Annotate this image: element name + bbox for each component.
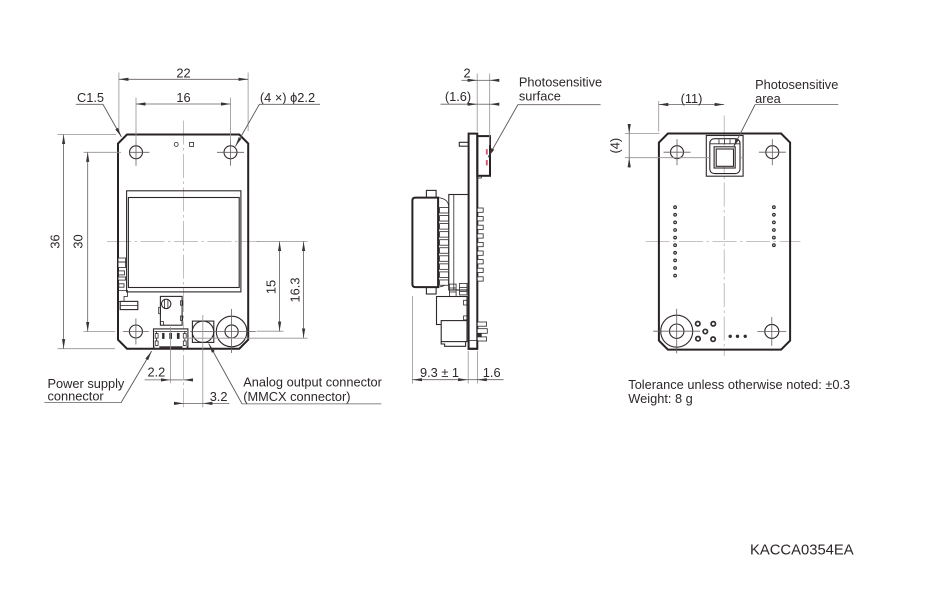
svg-text:2: 2 (463, 65, 470, 80)
svg-text:2.2: 2.2 (148, 365, 166, 380)
svg-text:16: 16 (176, 90, 190, 105)
svg-text:36: 36 (47, 234, 62, 248)
svg-text:Photosensitive: Photosensitive (755, 77, 838, 92)
svg-text:22: 22 (176, 65, 190, 80)
svg-text:Analog output connector: Analog output connector (243, 375, 382, 390)
svg-text:30: 30 (71, 234, 86, 248)
svg-text:1.6: 1.6 (483, 365, 501, 380)
svg-text:surface: surface (519, 89, 561, 104)
svg-text:(4 ×) ϕ2.2: (4 ×) ϕ2.2 (260, 90, 315, 105)
svg-text:KACCA0354EA: KACCA0354EA (750, 542, 854, 558)
svg-text:(1.6): (1.6) (445, 89, 471, 104)
svg-text:16.3: 16.3 (287, 278, 302, 303)
svg-text:area: area (755, 91, 781, 106)
svg-text:3.2: 3.2 (210, 389, 228, 404)
svg-text:Weight: 8 g: Weight: 8 g (628, 391, 693, 406)
svg-text:Photosensitive: Photosensitive (519, 74, 602, 89)
svg-text:Tolerance unless otherwise not: Tolerance unless otherwise noted: ±0.3 (628, 377, 850, 392)
svg-text:(11): (11) (681, 91, 703, 106)
svg-text:15: 15 (263, 280, 278, 294)
svg-text:connector: connector (48, 388, 105, 403)
svg-text:9.3 ± 1: 9.3 ± 1 (420, 365, 459, 380)
svg-text:(MMCX connector): (MMCX connector) (243, 389, 350, 404)
svg-text:(4): (4) (607, 138, 622, 154)
svg-text:C1.5: C1.5 (77, 90, 104, 105)
